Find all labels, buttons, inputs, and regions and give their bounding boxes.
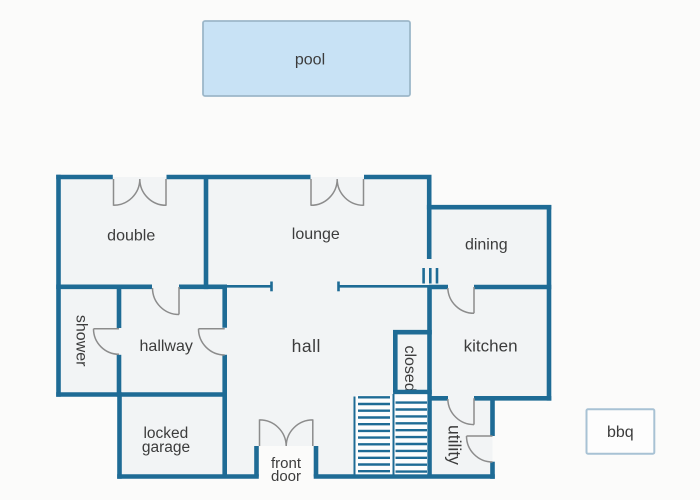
svg-text:kitchen: kitchen — [464, 337, 518, 356]
svg-text:hall: hall — [292, 336, 321, 356]
svg-text:dining: dining — [465, 237, 508, 254]
svg-text:garage: garage — [142, 439, 190, 456]
svg-text:closed: closed — [401, 345, 418, 391]
svg-text:lounge: lounge — [292, 226, 340, 243]
svg-text:bbq: bbq — [607, 424, 634, 441]
svg-text:shower: shower — [73, 315, 90, 367]
svg-text:door: door — [271, 468, 301, 485]
svg-text:utility: utility — [444, 425, 464, 465]
svg-text:double: double — [107, 227, 155, 244]
svg-text:hallway: hallway — [140, 338, 193, 355]
svg-text:pool: pool — [295, 52, 325, 69]
